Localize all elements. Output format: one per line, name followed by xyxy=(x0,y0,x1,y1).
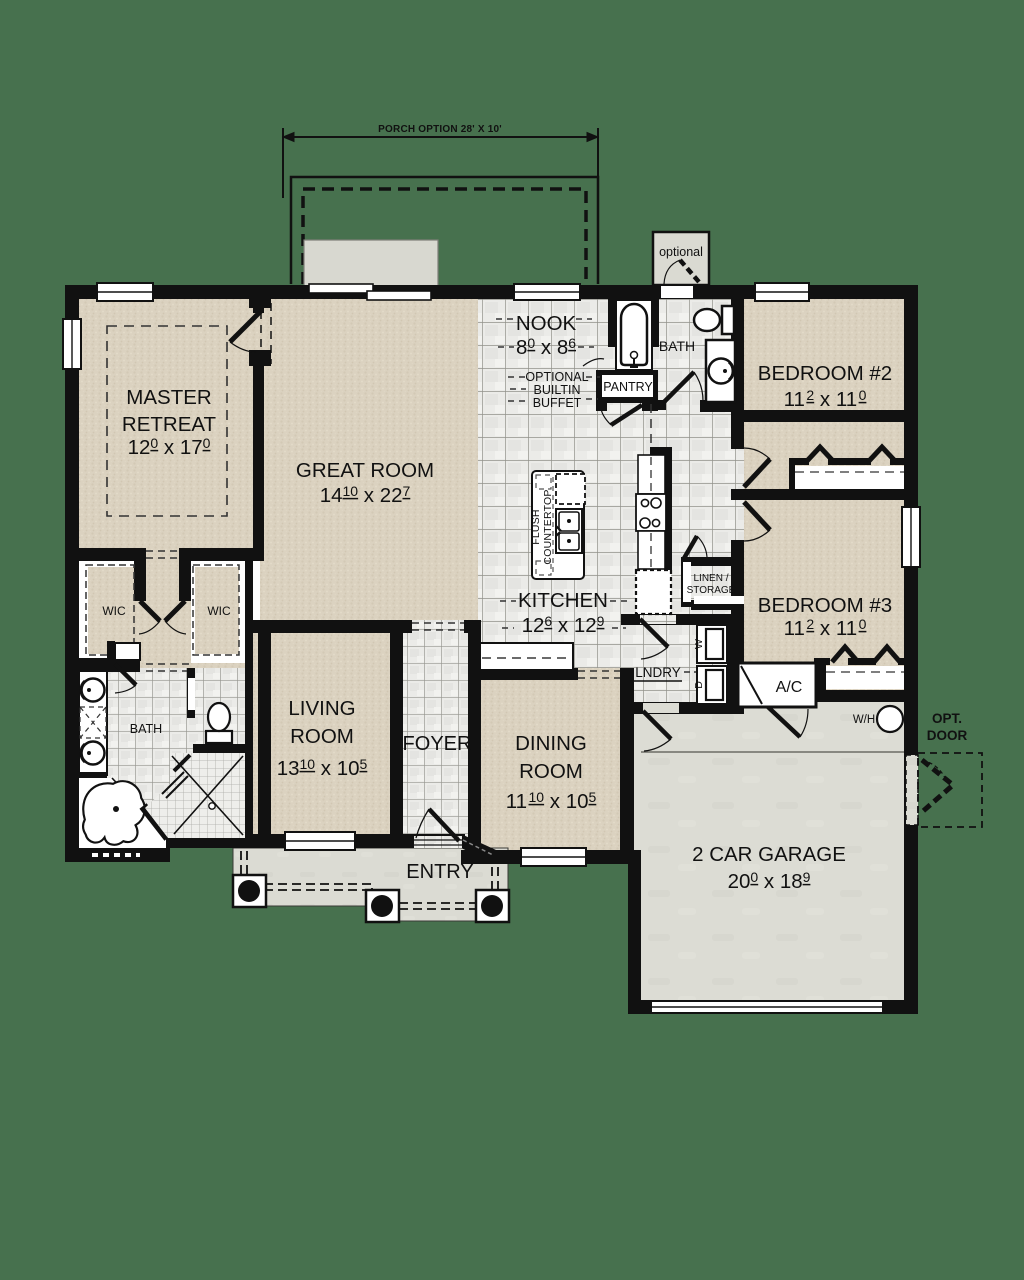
svg-text:PANTRY: PANTRY xyxy=(603,380,653,394)
svg-text:WIC: WIC xyxy=(102,604,126,618)
svg-text:2: 2 xyxy=(806,616,814,632)
svg-text:D: D xyxy=(693,681,705,689)
svg-text:FLUSH: FLUSH xyxy=(530,509,542,544)
svg-text:BATH: BATH xyxy=(130,722,162,736)
svg-text:COUNTERTOP: COUNTERTOP xyxy=(542,489,554,564)
svg-text:10: 10 xyxy=(343,483,359,499)
svg-text:STORAGE: STORAGE xyxy=(687,585,736,596)
svg-text:GREAT ROOM: GREAT ROOM xyxy=(296,459,434,482)
svg-text:x 17: x 17 xyxy=(158,436,202,459)
svg-text:BEDROOM #2: BEDROOM #2 xyxy=(758,362,892,385)
svg-text:FOYER: FOYER xyxy=(403,733,472,755)
svg-text:A/C: A/C xyxy=(776,679,803,696)
svg-text:OPT.: OPT. xyxy=(932,711,962,726)
svg-text:11: 11 xyxy=(784,617,805,640)
svg-text:OPTIONAL: OPTIONAL xyxy=(525,370,588,384)
svg-text:LNDRY: LNDRY xyxy=(635,665,681,680)
svg-text:2 CAR GARAGE: 2 CAR GARAGE xyxy=(692,843,846,866)
svg-text:x 12: x 12 xyxy=(552,614,596,637)
svg-text:BEDROOM #3: BEDROOM #3 xyxy=(758,594,892,617)
svg-text:NOOK: NOOK xyxy=(516,312,577,335)
svg-text:x 18: x 18 xyxy=(758,870,802,893)
svg-text:W/H: W/H xyxy=(853,714,875,726)
svg-text:20: 20 xyxy=(728,870,751,893)
svg-text:DOOR: DOOR xyxy=(927,728,968,743)
svg-text:9: 9 xyxy=(803,869,811,885)
svg-text:BATH: BATH xyxy=(659,338,695,354)
svg-text:ROOM: ROOM xyxy=(290,725,354,748)
svg-text:ENTRY: ENTRY xyxy=(406,861,473,883)
svg-text:x 10: x 10 xyxy=(315,757,359,780)
svg-text:KITCHEN: KITCHEN xyxy=(518,589,608,612)
svg-text:WIC: WIC xyxy=(207,604,231,618)
svg-text:x 11: x 11 xyxy=(814,388,857,411)
svg-text:0: 0 xyxy=(750,869,758,885)
svg-text:LINEN /: LINEN / xyxy=(693,573,728,584)
svg-text:x 10: x 10 xyxy=(544,790,588,813)
svg-text:11: 11 xyxy=(784,388,805,411)
svg-text:0: 0 xyxy=(150,435,158,451)
svg-text:LIVING: LIVING xyxy=(288,697,355,720)
svg-text:ROOM: ROOM xyxy=(519,760,583,783)
svg-text:12: 12 xyxy=(128,436,151,459)
svg-text:0: 0 xyxy=(527,335,535,351)
svg-text:9: 9 xyxy=(597,613,605,629)
svg-text:6: 6 xyxy=(568,335,576,351)
svg-text:2: 2 xyxy=(806,387,814,403)
svg-text:7: 7 xyxy=(403,483,411,499)
svg-text:6: 6 xyxy=(544,613,552,629)
svg-text:x 11: x 11 xyxy=(814,617,857,640)
svg-text:0: 0 xyxy=(203,435,211,451)
svg-text:optional: optional xyxy=(659,245,703,259)
svg-text:5: 5 xyxy=(360,756,368,772)
svg-text:PORCH OPTION 28' X 10': PORCH OPTION 28' X 10' xyxy=(378,124,502,135)
svg-text:0: 0 xyxy=(859,387,867,403)
svg-text:BUILTIN: BUILTIN xyxy=(534,383,581,397)
svg-text:12: 12 xyxy=(522,614,545,637)
svg-text:5: 5 xyxy=(589,789,597,805)
svg-text:x 8: x 8 xyxy=(535,336,568,359)
svg-text:RETREAT: RETREAT xyxy=(122,413,217,436)
svg-text:MASTER: MASTER xyxy=(126,386,211,409)
svg-text:13: 13 xyxy=(277,757,300,780)
svg-text:0: 0 xyxy=(859,616,867,632)
svg-text:14: 14 xyxy=(320,484,343,507)
svg-text:10: 10 xyxy=(300,756,316,772)
svg-text:W: W xyxy=(693,639,705,649)
svg-text:10: 10 xyxy=(529,789,545,805)
svg-text:11: 11 xyxy=(506,790,527,813)
svg-text:8: 8 xyxy=(516,336,527,359)
svg-text:x 22: x 22 xyxy=(358,484,402,507)
svg-text:BUFFET: BUFFET xyxy=(533,396,582,410)
svg-text:DINING: DINING xyxy=(515,732,587,755)
